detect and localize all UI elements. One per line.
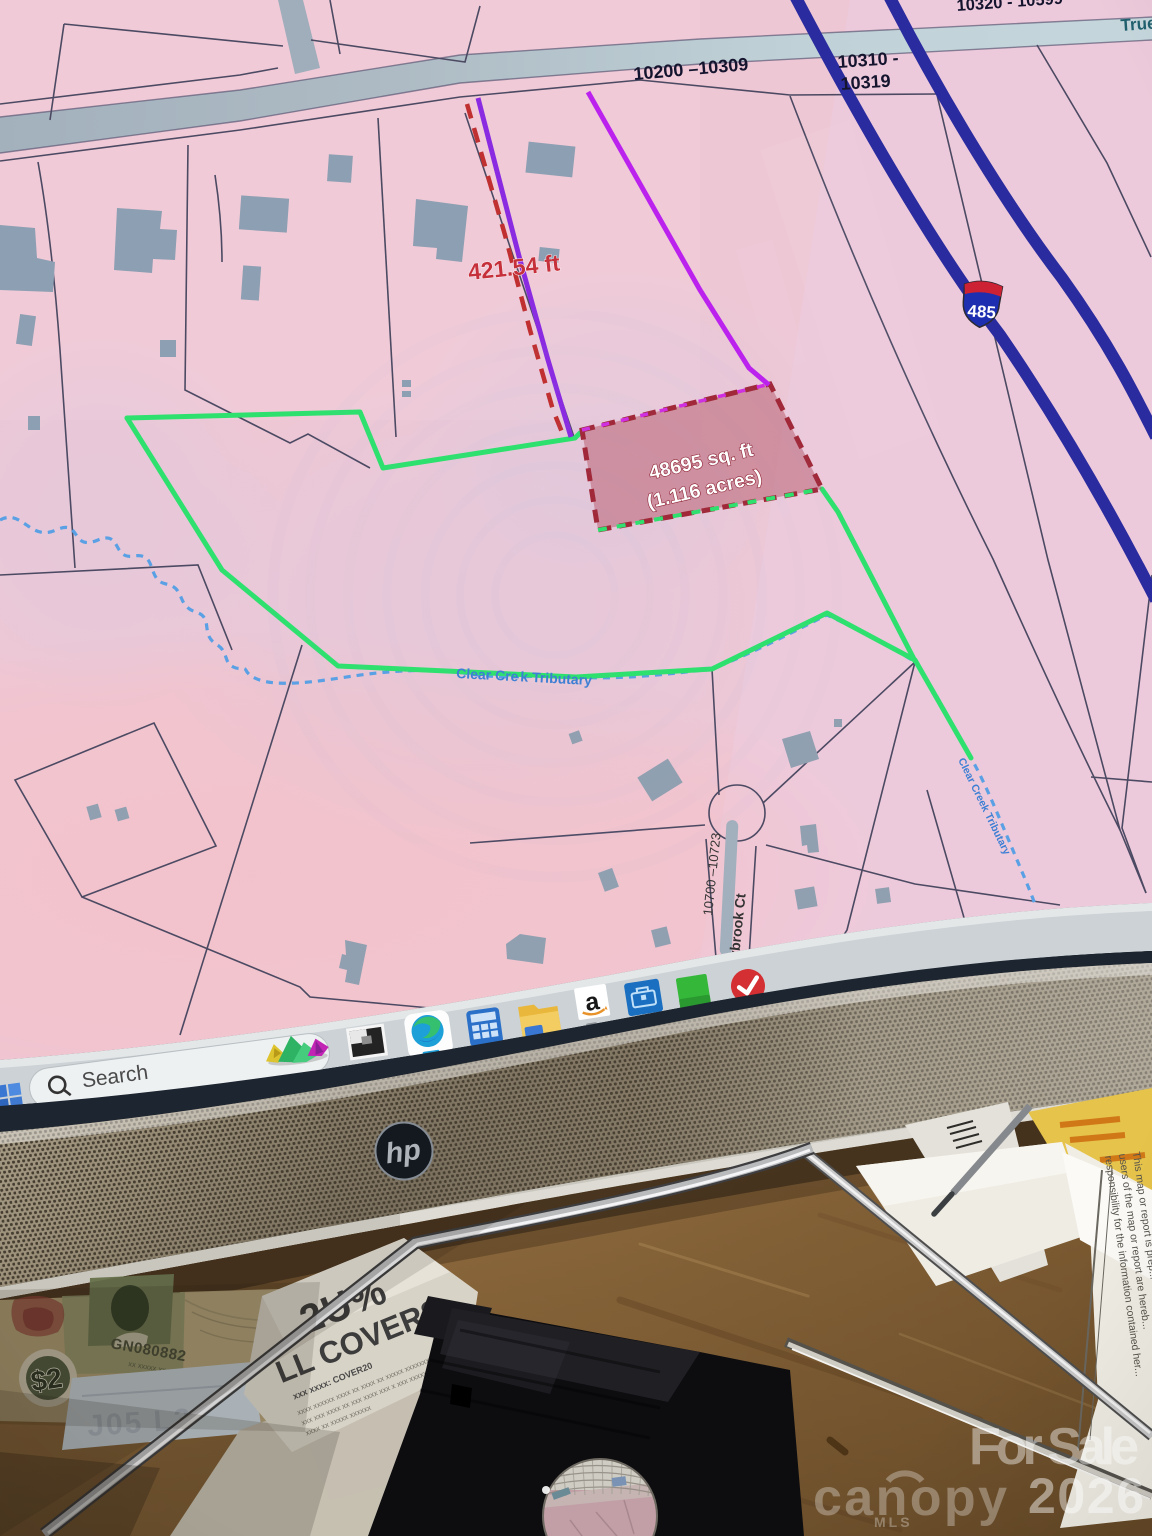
svg-text:MLS: MLS (874, 1514, 913, 1530)
svg-text:2026: 2026 (1028, 1468, 1144, 1524)
